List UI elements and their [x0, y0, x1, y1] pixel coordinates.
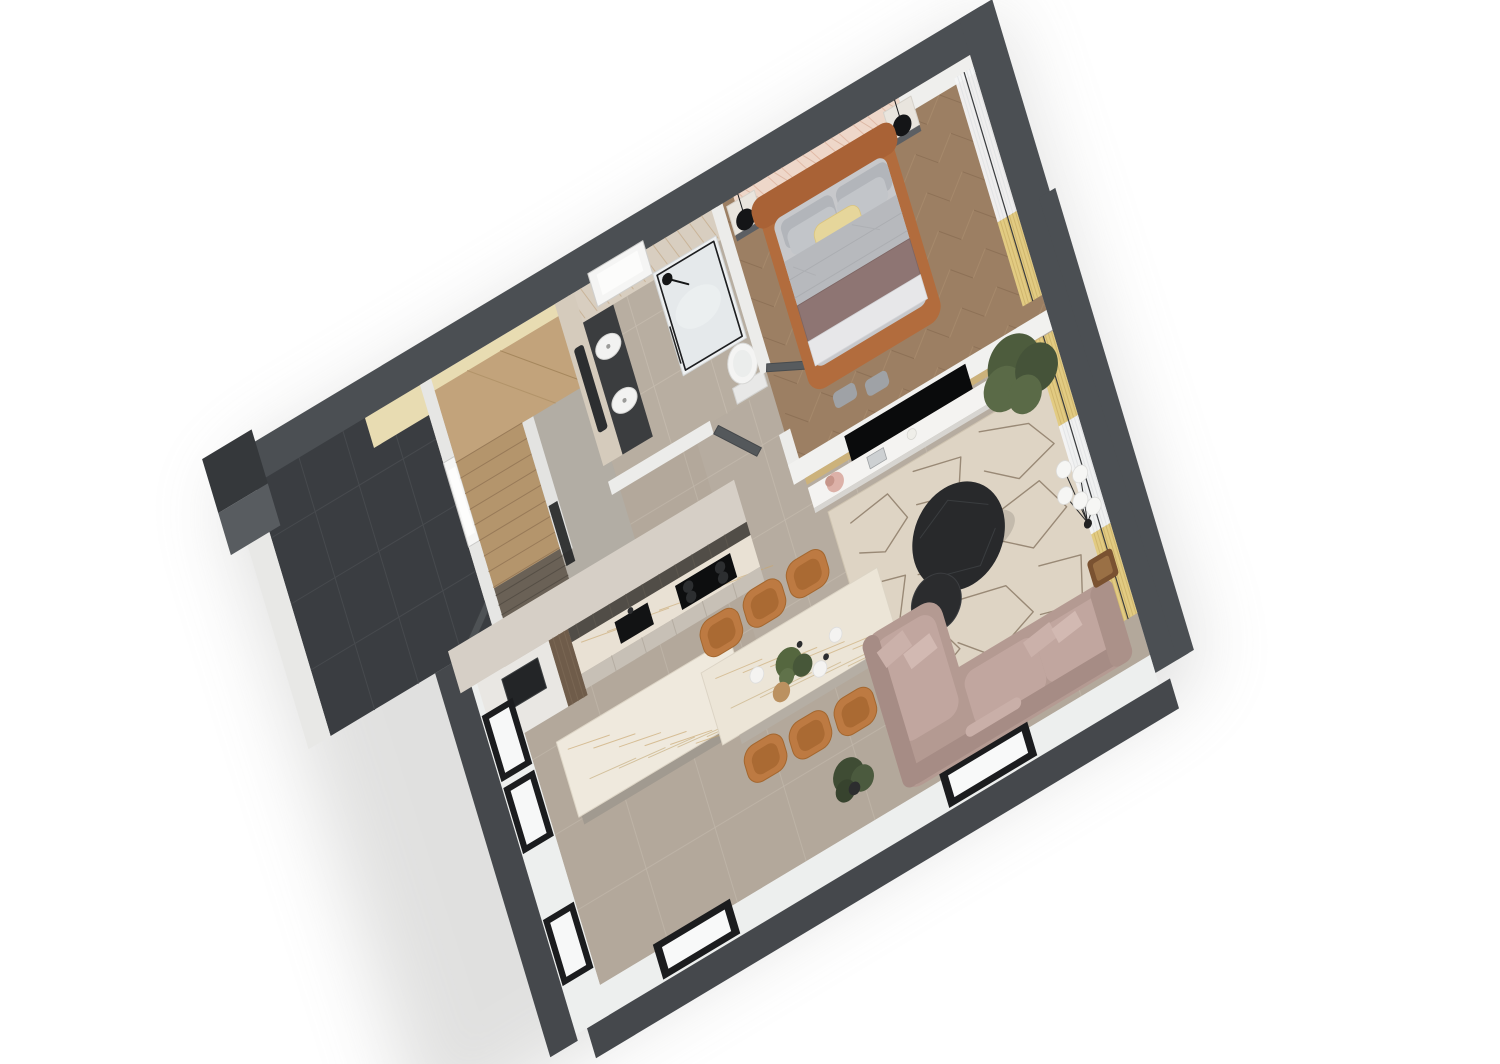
floorplan-stage [0, 0, 1500, 1064]
floorplan-3d-render [0, 0, 1500, 1064]
scene-root [202, 0, 1212, 1064]
